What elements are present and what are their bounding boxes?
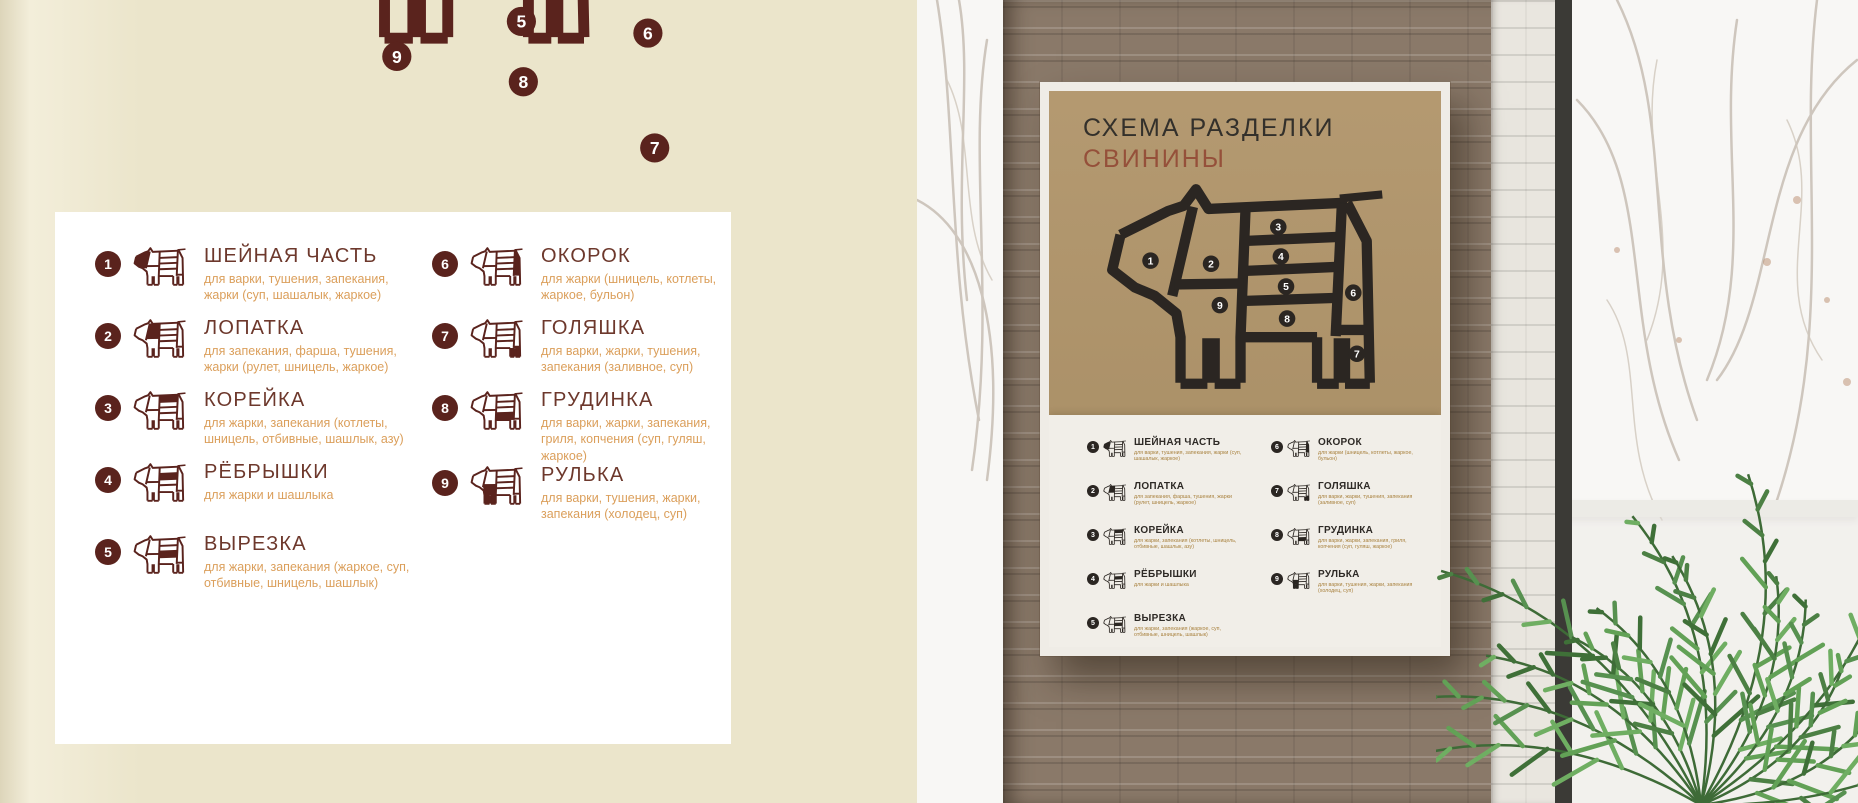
cut-number: 7 bbox=[441, 328, 449, 344]
cut-text: РЁБРЫШКИ для жарки и шашлыка bbox=[1134, 569, 1246, 588]
legend-item: 4 РЁБРЫШКИ для жарки и шашлыка bbox=[95, 461, 432, 533]
pig-cut-icon bbox=[1287, 440, 1312, 457]
svg-text:6: 6 bbox=[1350, 288, 1356, 299]
wall-poster: СХЕМА РАЗДЕЛКИ СВИНИНЫ 123456789 1 ШЕЙНА… bbox=[1040, 82, 1450, 656]
cut-text: ВЫРЕЗКА для жарки, запекания (жаркое, су… bbox=[1134, 613, 1246, 639]
svg-text:3: 3 bbox=[1275, 223, 1281, 234]
pig-cut-icon bbox=[1103, 572, 1128, 589]
legend-item: 5 ВЫРЕЗКА для жарки, запекания (жаркое, … bbox=[95, 533, 432, 605]
legend-item: 1 ШЕЙНАЯ ЧАСТЬ для варки, тушения, запек… bbox=[95, 245, 432, 317]
svg-text:9: 9 bbox=[392, 47, 402, 67]
cut-text: РЁБРЫШКИ для жарки и шашлыка bbox=[204, 461, 422, 503]
pig-cut-icon bbox=[133, 391, 190, 430]
poster-legend: 1 ШЕЙНАЯ ЧАСТЬ для варки, тушения, запек… bbox=[1049, 415, 1441, 647]
svg-text:4: 4 bbox=[1278, 252, 1284, 263]
cut-description: для жарки (шницель, котлеты, жаркое, бул… bbox=[1318, 450, 1421, 464]
cut-description: для жарки, запекания (котлеты, шницель, … bbox=[1134, 538, 1246, 552]
cut-number: 8 bbox=[1275, 532, 1279, 539]
svg-text:8: 8 bbox=[1284, 314, 1290, 325]
cut-title: ОКОРОК bbox=[1318, 437, 1421, 449]
cut-number: 6 bbox=[441, 256, 449, 272]
pig-cut-icon bbox=[1103, 484, 1128, 501]
poster-legend-column-right: 6 ОКОРОК для жарки (шницель, котлеты, жа… bbox=[1271, 437, 1421, 647]
cut-text: ГОЛЯШКА для варки, жарки, тушения, запек… bbox=[1318, 481, 1421, 507]
cut-title: ГРУДИНКА bbox=[541, 389, 732, 412]
pig-cut-icon bbox=[1103, 440, 1128, 457]
cut-description: для жарки и шашлыка bbox=[1134, 582, 1246, 589]
legend-column-right: 6 ОКОРОК для жарки (шницель, котлеты, жа… bbox=[432, 245, 732, 744]
pig-cut-icon bbox=[1103, 616, 1128, 633]
number-badge: 2 bbox=[95, 323, 121, 349]
cut-text: ШЕЙНАЯ ЧАСТЬ для варки, тушения, запекан… bbox=[204, 245, 422, 304]
pig-cut-icon bbox=[133, 463, 190, 502]
cut-description: для варки, жарки, запекания, гриля, копч… bbox=[1318, 538, 1421, 552]
number-badge: 3 bbox=[95, 395, 121, 421]
svg-text:9: 9 bbox=[1217, 301, 1223, 312]
cut-text: ШЕЙНАЯ ЧАСТЬ для варки, тушения, запекан… bbox=[1134, 437, 1246, 463]
legend-item: 7 ГОЛЯШКА для варки, жарки, тушения, зап… bbox=[432, 317, 732, 389]
cut-text: ЛОПАТКА для запекания, фарша, тушения, ж… bbox=[204, 317, 422, 376]
svg-text:8: 8 bbox=[518, 72, 528, 92]
svg-text:7: 7 bbox=[650, 138, 660, 158]
pig-cut-icon bbox=[133, 535, 190, 574]
number-badge: 9 bbox=[1271, 573, 1283, 585]
cut-title: ШЕЙНАЯ ЧАСТЬ bbox=[1134, 437, 1246, 449]
cut-number: 9 bbox=[441, 475, 449, 491]
cut-number: 9 bbox=[1275, 576, 1279, 583]
legend-column-left: 1 ШЕЙНАЯ ЧАСТЬ для варки, тушения, запек… bbox=[95, 245, 432, 744]
legend-item: 6 ОКОРОК для жарки (шницель, котлеты, жа… bbox=[1271, 437, 1421, 481]
poster-legend-column-left: 1 ШЕЙНАЯ ЧАСТЬ для варки, тушения, запек… bbox=[1087, 437, 1255, 647]
number-badge: 6 bbox=[1271, 441, 1283, 453]
legend-item: 6 ОКОРОК для жарки (шницель, котлеты, жа… bbox=[432, 245, 732, 317]
cut-title: РЁБРЫШКИ bbox=[1134, 569, 1246, 581]
number-badge: 5 bbox=[1087, 617, 1099, 629]
cut-number: 2 bbox=[104, 328, 112, 344]
svg-text:6: 6 bbox=[643, 23, 653, 43]
number-badge: 3 bbox=[1087, 529, 1099, 541]
cut-title: ВЫРЕЗКА bbox=[1134, 613, 1246, 625]
cut-number: 1 bbox=[104, 256, 112, 272]
cut-title: ЛОПАТКА bbox=[204, 317, 422, 340]
legend-item: 8 ГРУДИНКА для варки, жарки, запекания, … bbox=[432, 389, 732, 464]
cut-description: для запекания, фарша, тушения, жарки (ру… bbox=[204, 343, 422, 376]
poster-title-line2: СВИНИНЫ bbox=[1083, 144, 1441, 175]
mockup-photo-panel: СХЕМА РАЗДЕЛКИ СВИНИНЫ 123456789 1 ШЕЙНА… bbox=[917, 0, 1858, 803]
cut-number: 4 bbox=[1091, 576, 1095, 583]
legend-item: 9 РУЛЬКА для варки, тушения, жарки, запе… bbox=[432, 464, 732, 536]
flat-design-panel: 59687 1 ШЕЙНАЯ ЧАСТЬ для варки, тушения,… bbox=[0, 0, 917, 803]
cut-title: РУЛЬКА bbox=[541, 464, 732, 487]
number-badge: 4 bbox=[95, 467, 121, 493]
legend-item: 3 КОРЕЙКА для жарки, запекания (котлеты,… bbox=[95, 389, 432, 461]
legend-item: 1 ШЕЙНАЯ ЧАСТЬ для варки, тушения, запек… bbox=[1087, 437, 1255, 481]
number-badge: 5 bbox=[95, 539, 121, 565]
cut-text: ВЫРЕЗКА для жарки, запекания (жаркое, су… bbox=[204, 533, 422, 592]
cut-number: 5 bbox=[1091, 620, 1095, 627]
number-badge: 1 bbox=[95, 251, 121, 277]
cut-description: для варки, жарки, запекания, гриля, копч… bbox=[541, 415, 732, 464]
pork-cuts-design-presentation: 59687 1 ШЕЙНАЯ ЧАСТЬ для варки, тушения,… bbox=[0, 0, 1858, 803]
number-badge: 8 bbox=[432, 395, 458, 421]
svg-text:5: 5 bbox=[517, 12, 527, 32]
svg-text:5: 5 bbox=[1283, 282, 1289, 293]
pig-cuts-diagram-full: 123456789 bbox=[1105, 183, 1405, 390]
cut-description: для варки, тушения, жарки, запекания (хо… bbox=[1318, 582, 1421, 596]
cut-description: для запекания, фарша, тушения, жарки (ру… bbox=[1134, 494, 1246, 508]
number-badge: 9 bbox=[432, 470, 458, 496]
legend-item: 3 КОРЕЙКА для жарки, запекания (котлеты,… bbox=[1087, 525, 1255, 569]
cut-number: 7 bbox=[1275, 488, 1279, 495]
cut-text: ГРУДИНКА для варки, жарки, запекания, гр… bbox=[1318, 525, 1421, 551]
cut-text: КОРЕЙКА для жарки, запекания (котлеты, ш… bbox=[1134, 525, 1246, 551]
cut-description: для жарки (шницель, котлеты, жаркое, бул… bbox=[541, 271, 732, 304]
svg-text:7: 7 bbox=[1354, 349, 1360, 360]
cut-title: ГРУДИНКА bbox=[1318, 525, 1421, 537]
cut-description: для варки, тушения, жарки, запекания (хо… bbox=[541, 490, 732, 523]
cut-number: 4 bbox=[104, 472, 112, 488]
number-badge: 2 bbox=[1087, 485, 1099, 497]
cut-text: ЛОПАТКА для запекания, фарша, тушения, ж… bbox=[1134, 481, 1246, 507]
cut-text: ОКОРОК для жарки (шницель, котлеты, жарк… bbox=[541, 245, 732, 304]
cut-description: для жарки, запекания (жаркое, суп, отбив… bbox=[204, 559, 422, 592]
pig-cut-icon bbox=[1287, 484, 1312, 501]
cut-description: для варки, жарки, тушения, запекания (за… bbox=[1318, 494, 1421, 508]
cut-text: ГОЛЯШКА для варки, жарки, тушения, запек… bbox=[541, 317, 732, 376]
number-badge: 6 bbox=[432, 251, 458, 277]
cut-number: 6 bbox=[1275, 444, 1279, 451]
cut-text: ГРУДИНКА для варки, жарки, запекания, гр… bbox=[541, 389, 732, 464]
legend-item: 5 ВЫРЕЗКА для жарки, запекания (жаркое, … bbox=[1087, 613, 1255, 647]
pig-cut-icon bbox=[1103, 528, 1128, 545]
cut-title: ЛОПАТКА bbox=[1134, 481, 1246, 493]
legend-item: 8 ГРУДИНКА для варки, жарки, запекания, … bbox=[1271, 525, 1421, 569]
pig-cut-icon bbox=[1287, 528, 1312, 545]
number-badge: 8 bbox=[1271, 529, 1283, 541]
pig-cut-icon bbox=[470, 466, 527, 505]
pig-cuts-diagram-cropped: 59687 bbox=[168, 0, 758, 218]
cut-title: ГОЛЯШКА bbox=[1318, 481, 1421, 493]
cut-text: КОРЕЙКА для жарки, запекания (котлеты, ш… bbox=[204, 389, 422, 448]
pig-cut-icon bbox=[470, 391, 527, 430]
poster-title: СХЕМА РАЗДЕЛКИ СВИНИНЫ bbox=[1049, 91, 1441, 176]
cut-title: ОКОРОК bbox=[541, 245, 732, 268]
number-badge: 4 bbox=[1087, 573, 1099, 585]
number-badge: 1 bbox=[1087, 441, 1099, 453]
cut-text: РУЛЬКА для варки, тушения, жарки, запека… bbox=[1318, 569, 1421, 595]
cut-number: 2 bbox=[1091, 488, 1095, 495]
cut-title: РЁБРЫШКИ bbox=[204, 461, 422, 484]
svg-text:1: 1 bbox=[1148, 256, 1154, 267]
cut-title: ВЫРЕЗКА bbox=[204, 533, 422, 556]
poster-title-line1: СХЕМА РАЗДЕЛКИ bbox=[1083, 113, 1441, 144]
legend-item: 4 РЁБРЫШКИ для жарки и шашлыка bbox=[1087, 569, 1255, 613]
cut-description: для варки, тушения, запекания, жарки (су… bbox=[204, 271, 422, 304]
legend-item: 7 ГОЛЯШКА для варки, жарки, тушения, зап… bbox=[1271, 481, 1421, 525]
number-badge: 7 bbox=[1271, 485, 1283, 497]
cut-number: 5 bbox=[104, 544, 112, 560]
cut-title: РУЛЬКА bbox=[1318, 569, 1421, 581]
cut-title: ШЕЙНАЯ ЧАСТЬ bbox=[204, 245, 422, 268]
cut-description: для жарки, запекания (жаркое, суп, отбив… bbox=[1134, 626, 1246, 640]
cut-number: 8 bbox=[441, 400, 449, 416]
cut-title: КОРЕЙКА bbox=[204, 389, 422, 412]
number-badge: 7 bbox=[432, 323, 458, 349]
legend-item: 2 ЛОПАТКА для запекания, фарша, тушения,… bbox=[1087, 481, 1255, 525]
pig-cut-icon bbox=[470, 247, 527, 286]
palm-plant bbox=[1436, 217, 1858, 803]
cut-number: 1 bbox=[1091, 444, 1095, 451]
cut-description: для варки, жарки, тушения, запекания (за… bbox=[541, 343, 732, 376]
legend-item: 2 ЛОПАТКА для запекания, фарша, тушения,… bbox=[95, 317, 432, 389]
cut-number: 3 bbox=[104, 400, 112, 416]
legend-item: 9 РУЛЬКА для варки, тушения, жарки, запе… bbox=[1271, 569, 1421, 613]
pig-cut-icon bbox=[133, 247, 190, 286]
cut-text: ОКОРОК для жарки (шницель, котлеты, жарк… bbox=[1318, 437, 1421, 463]
pig-cut-icon bbox=[133, 319, 190, 358]
legend-panel: 1 ШЕЙНАЯ ЧАСТЬ для варки, тушения, запек… bbox=[55, 212, 731, 744]
cut-description: для жарки и шашлыка bbox=[204, 487, 422, 503]
pig-cut-icon bbox=[470, 319, 527, 358]
cut-title: КОРЕЙКА bbox=[1134, 525, 1246, 537]
poster-artwork: СХЕМА РАЗДЕЛКИ СВИНИНЫ 123456789 1 ШЕЙНА… bbox=[1049, 91, 1441, 647]
svg-text:2: 2 bbox=[1208, 259, 1214, 270]
cut-number: 3 bbox=[1091, 532, 1095, 539]
cut-title: ГОЛЯШКА bbox=[541, 317, 732, 340]
cut-description: для варки, тушения, запекания, жарки (су… bbox=[1134, 450, 1246, 464]
cut-description: для жарки, запекания (котлеты, шницель, … bbox=[204, 415, 422, 448]
pig-cut-icon bbox=[1287, 572, 1312, 589]
cut-text: РУЛЬКА для варки, тушения, жарки, запека… bbox=[541, 464, 732, 523]
